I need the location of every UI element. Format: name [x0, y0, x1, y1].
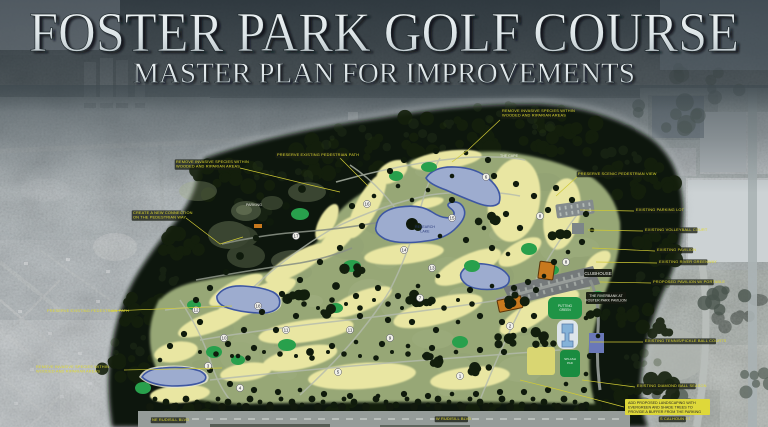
- svg-text:17: 17: [293, 234, 299, 239]
- svg-text:S CALHOUN ST: S CALHOUN ST: [660, 416, 691, 421]
- svg-text:NE RUDISILL BLVD: NE RUDISILL BLVD: [152, 417, 189, 422]
- svg-text:FOSTER PARK GOLF COURSE: FOSTER PARK GOLF COURSE: [29, 2, 739, 64]
- svg-text:18: 18: [255, 304, 261, 309]
- svg-text:EXISTING RIVER GREENWAY: EXISTING RIVER GREENWAY: [659, 259, 717, 264]
- svg-text:CLUBHOUSE: CLUBHOUSE: [584, 271, 611, 276]
- svg-text:EXISTING DIAMOND BALL SEASON: EXISTING DIAMOND BALL SEASON: [637, 383, 707, 388]
- svg-text:PRESERVE SCENIC PEDESTRIAN VIE: PRESERVE SCENIC PEDESTRIAN VIEW: [578, 171, 657, 176]
- svg-text:EXISTING VOLLEYBALL COURT: EXISTING VOLLEYBALL COURT: [645, 227, 708, 232]
- svg-text:WOODED AND RIPARIAN AREAS: WOODED AND RIPARIAN AREAS: [176, 164, 240, 169]
- svg-text:11: 11: [348, 328, 353, 333]
- svg-text:ADD PROPOSED LANDSCAPING WITH: ADD PROPOSED LANDSCAPING WITH: [628, 401, 696, 405]
- svg-text:RESEARCH: RESEARCH: [415, 225, 435, 229]
- svg-text:W RUDISILL BLVD: W RUDISILL BLVD: [436, 416, 471, 421]
- svg-text:FOSTER PARK PAVILION: FOSTER PARK PAVILION: [585, 299, 627, 303]
- svg-text:14: 14: [401, 248, 407, 253]
- svg-text:PRESERVE EXISTING PEDESTRIAN P: PRESERVE EXISTING PEDESTRIAN PATH: [47, 308, 129, 313]
- svg-text:EXISTING TENNIS/PICKLE BALL CO: EXISTING TENNIS/PICKLE BALL COURTS: [645, 338, 727, 343]
- svg-text:MASTER PLAN FOR IMPROVEMENTS: MASTER PLAN FOR IMPROVEMENTS: [133, 58, 635, 90]
- svg-text:PRESERVE EXISTING PEDESTRIAN P: PRESERVE EXISTING PEDESTRIAN PATH: [277, 152, 359, 157]
- svg-text:12: 12: [193, 308, 199, 313]
- svg-text:11: 11: [284, 328, 289, 333]
- svg-text:WOODED AND RIPARIAN AREAS: WOODED AND RIPARIAN AREAS: [36, 369, 100, 374]
- svg-text:PARKING: PARKING: [246, 203, 262, 207]
- svg-text:PAD: PAD: [567, 361, 574, 365]
- svg-text:ON THE PEDESTRIAN WAY: ON THE PEDESTRIAN WAY: [133, 215, 186, 220]
- svg-text:WOODED AND RIPARIAN AREAS: WOODED AND RIPARIAN AREAS: [502, 113, 566, 118]
- svg-text:PROPOSED PAVILION W/ PORTABLE: PROPOSED PAVILION W/ PORTABLE: [653, 279, 725, 284]
- svg-text:PROVIDE A BUFFER FROM THE PARK: PROVIDE A BUFFER FROM THE PARKING: [628, 410, 701, 414]
- svg-text:EXISTING PARKING LOT: EXISTING PARKING LOT: [636, 207, 685, 212]
- svg-text:10: 10: [221, 336, 227, 341]
- svg-text:GREEN: GREEN: [559, 308, 571, 312]
- svg-text:EVERGREEN AND SHADE TREES TO: EVERGREEN AND SHADE TREES TO: [628, 406, 693, 410]
- svg-text:EXISTING PAVILION: EXISTING PAVILION: [657, 247, 696, 252]
- svg-text:16: 16: [364, 202, 370, 207]
- svg-text:13: 13: [429, 266, 435, 271]
- svg-text:THE CAPE: THE CAPE: [500, 154, 519, 158]
- svg-text:15: 15: [449, 216, 455, 221]
- svg-text:LAKE: LAKE: [420, 230, 430, 234]
- svg-text:THE RIVERBANK AT: THE RIVERBANK AT: [589, 294, 623, 298]
